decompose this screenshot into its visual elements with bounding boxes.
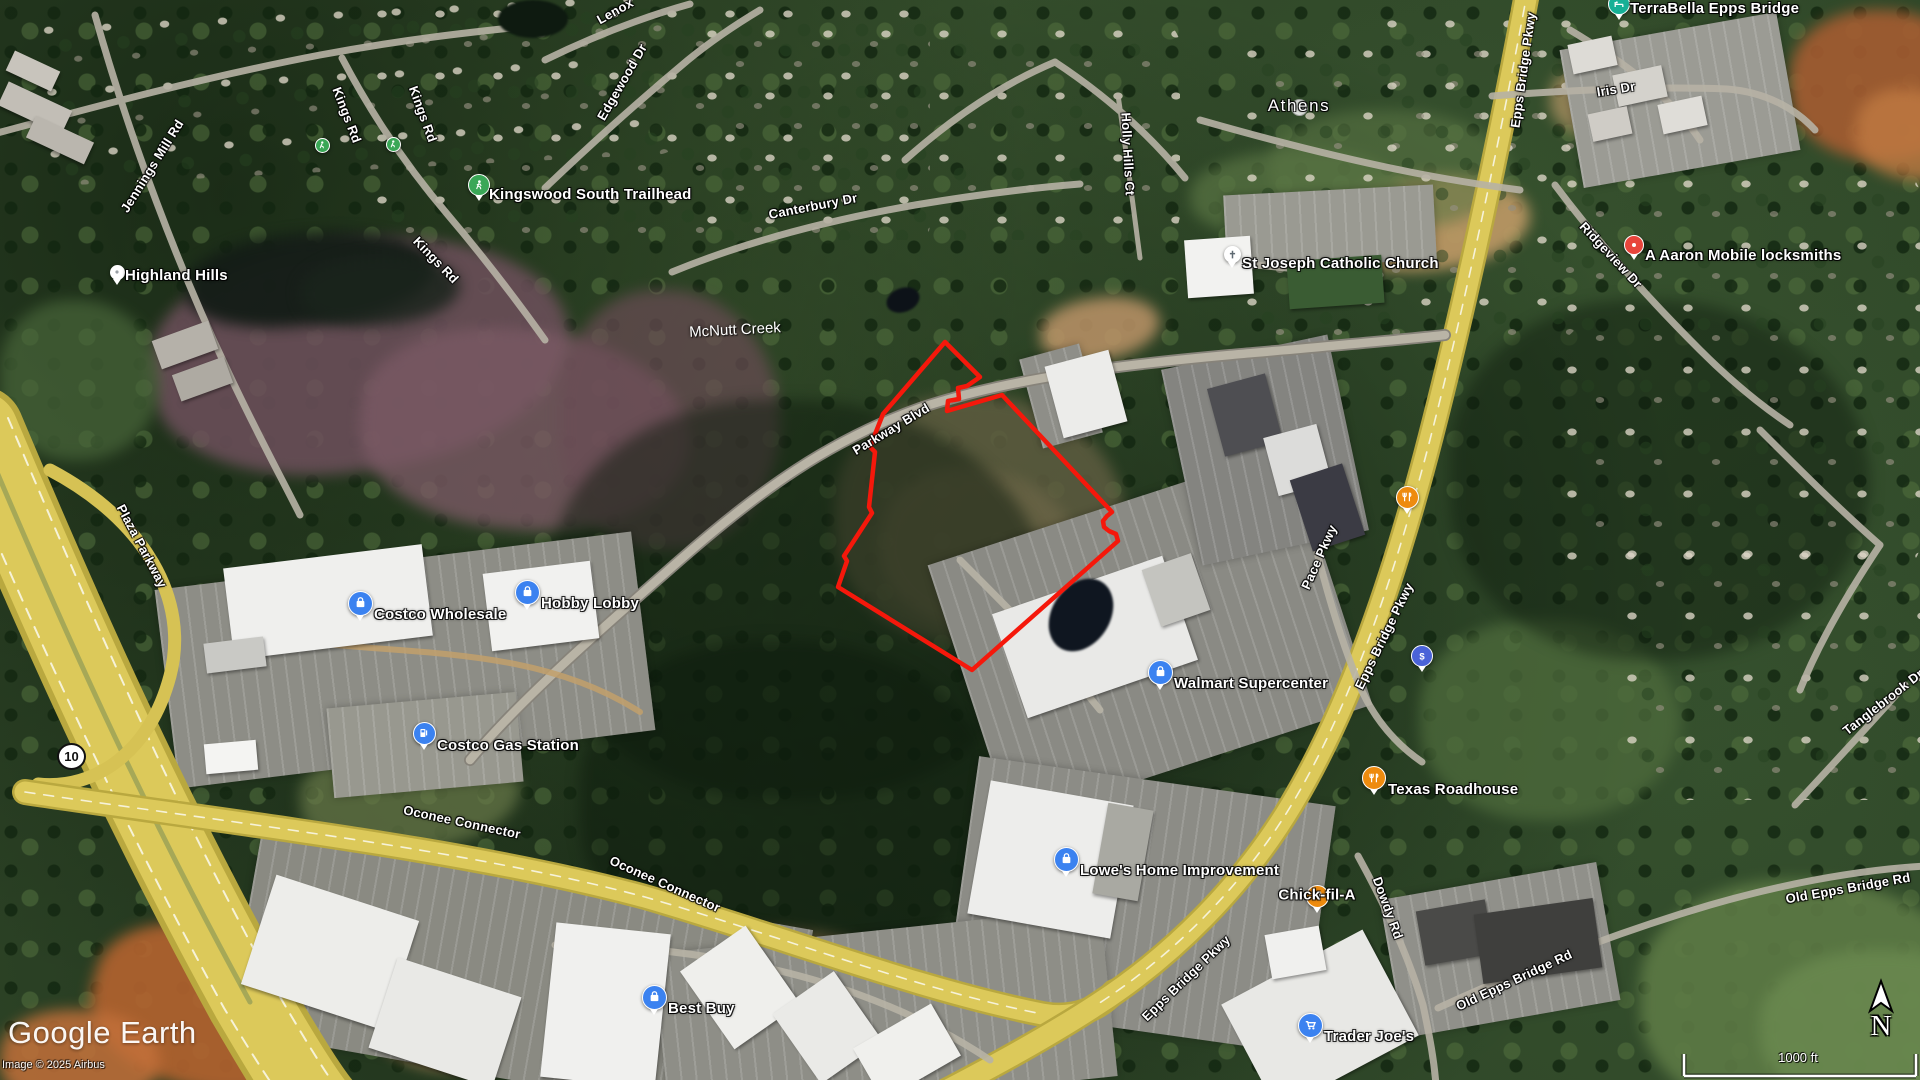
imagery-attribution: Image © 2025 Airbus bbox=[2, 1059, 105, 1071]
lodging-icon bbox=[1612, 0, 1626, 11]
place-pin-a-aaron-mobile-locksmiths[interactable] bbox=[1624, 235, 1644, 255]
shopping-bag-icon bbox=[520, 585, 535, 600]
cross-icon bbox=[1226, 248, 1239, 261]
place-pin-best-buy[interactable] bbox=[642, 985, 667, 1010]
place-label-trader-joes[interactable]: Trader Joe's bbox=[1324, 1028, 1414, 1045]
shopping-bag-icon bbox=[1059, 852, 1074, 867]
place-pin-restaurant[interactable] bbox=[1396, 486, 1419, 509]
place-label-costco-wholesale[interactable]: Costco Wholesale bbox=[374, 606, 506, 623]
pin-tail bbox=[420, 744, 428, 750]
pin-tail bbox=[1228, 262, 1236, 268]
pin-tail bbox=[475, 195, 483, 201]
place-pin-costco-wholesale[interactable] bbox=[348, 591, 373, 616]
pin-tail bbox=[1313, 907, 1321, 913]
place-label-chick-fil-a[interactable]: Chick-fil-A bbox=[1278, 887, 1355, 904]
place-label-costco-gas-station[interactable]: Costco Gas Station bbox=[437, 737, 579, 754]
pin-tail bbox=[650, 1009, 658, 1015]
pin-tail bbox=[523, 604, 531, 610]
north-label: N bbox=[1856, 1010, 1906, 1043]
place-label-a-aaron-mobile-locksmiths[interactable]: A Aaron Mobile locksmiths bbox=[1645, 247, 1841, 264]
place-label-hobby-lobby[interactable]: Hobby Lobby bbox=[541, 595, 639, 612]
fuel-pump-icon bbox=[417, 726, 431, 740]
fork-knife-icon bbox=[1367, 771, 1381, 785]
pin-tail bbox=[1062, 871, 1070, 877]
scale-bar-label: 1000 ft bbox=[1676, 1050, 1920, 1065]
place-pin-costco-gas-station[interactable] bbox=[413, 722, 436, 745]
hiker-icon bbox=[388, 139, 398, 149]
place-label-lowes-home-improvement[interactable]: Lowe's Home Improvement bbox=[1080, 862, 1279, 879]
place-label-highland-hills[interactable]: Highland Hills bbox=[125, 267, 228, 284]
place-pin-texas-roadhouse[interactable] bbox=[1362, 766, 1386, 790]
place-label-st-joseph-catholic-church[interactable]: St Joseph Catholic Church bbox=[1242, 255, 1439, 272]
place-pin-trader-joes[interactable] bbox=[1298, 1013, 1323, 1038]
place-label-athens[interactable]: Athens bbox=[1268, 96, 1331, 116]
place-pin-st-joseph-catholic-church[interactable] bbox=[1224, 246, 1241, 263]
property-boundary-overlay bbox=[0, 0, 1920, 1080]
place-pin-bank[interactable]: $ bbox=[1411, 645, 1433, 667]
pin-tail bbox=[113, 279, 121, 285]
place-label-best-buy[interactable]: Best Buy bbox=[668, 1000, 735, 1017]
place-label-kingswood-south-trailhead[interactable]: Kingswood South Trailhead bbox=[489, 186, 692, 203]
route-10-shield: 10 bbox=[57, 743, 86, 770]
place-pin-lowes-home-improvement[interactable] bbox=[1054, 847, 1079, 872]
svg-text:$: $ bbox=[1419, 651, 1425, 662]
google-earth-map-viewport[interactable]: Highland HillsKingswood South TrailheadA… bbox=[0, 0, 1920, 1080]
pin-tail bbox=[1306, 1037, 1314, 1043]
pin-tail bbox=[1630, 254, 1638, 260]
shopping-bag-icon bbox=[647, 990, 662, 1005]
shopping-bag-icon bbox=[353, 596, 368, 611]
pin-tail bbox=[1615, 14, 1623, 20]
place-pin-highland-hills[interactable] bbox=[110, 265, 125, 280]
place-label-texas-roadhouse[interactable]: Texas Roadhouse bbox=[1388, 781, 1518, 798]
pin-tail bbox=[1156, 684, 1164, 690]
shopping-bag-icon bbox=[1153, 665, 1168, 680]
red-parcel-outline bbox=[838, 342, 1118, 670]
place-pin-kingswood-south-trailhead[interactable] bbox=[468, 174, 490, 196]
google-earth-logo: Google Earth bbox=[8, 1015, 197, 1051]
place-label-walmart-supercenter[interactable]: Walmart Supercenter bbox=[1174, 675, 1328, 692]
pin-tail bbox=[1370, 789, 1378, 795]
shopping-cart-icon bbox=[1303, 1018, 1318, 1033]
route-10-shield-number: 10 bbox=[64, 749, 78, 764]
dollar-icon: $ bbox=[1415, 649, 1429, 663]
place-dot-icon bbox=[112, 267, 122, 277]
scale-bar: 1000 ft bbox=[1676, 1048, 1920, 1080]
place-label-terrabella-epps-bridge[interactable]: TerraBella Epps Bridge bbox=[1630, 0, 1799, 17]
hiker-icon bbox=[472, 178, 486, 192]
north-compass[interactable]: N bbox=[1856, 978, 1906, 1048]
pin-tail bbox=[1403, 508, 1411, 514]
hiker-icon bbox=[317, 140, 327, 150]
pin-tail bbox=[356, 615, 364, 621]
fork-knife-icon bbox=[1400, 490, 1414, 504]
place-pin-trail-dot-west[interactable] bbox=[315, 138, 330, 153]
place-pin-walmart-supercenter[interactable] bbox=[1148, 660, 1173, 685]
pin-tail bbox=[1418, 666, 1426, 672]
place-pin-hobby-lobby[interactable] bbox=[515, 580, 540, 605]
place-pin-trail-dot-east[interactable] bbox=[386, 137, 401, 152]
place-dot-icon bbox=[1628, 239, 1640, 251]
